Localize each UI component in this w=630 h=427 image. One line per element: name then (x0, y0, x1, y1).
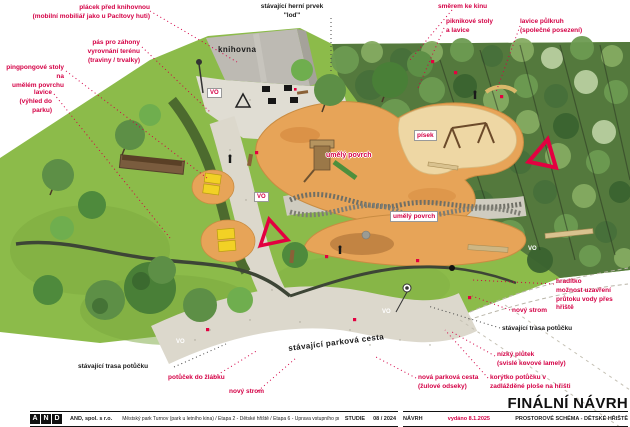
annotation-novy-strom-bottom: nový strom (229, 388, 264, 397)
date-label: 08 / 2024 (373, 416, 396, 422)
title-block-left: A N D AND, spol. s r.o. Městský park Tur… (30, 411, 398, 427)
annotation-potucek-zlabek: potůček do žlábku (168, 374, 225, 383)
annotation-smerem-ke-kinu: směrem ke kinu (438, 3, 487, 12)
annotation-piknikove-stoly: piknikové stoly a lavice (446, 18, 493, 36)
site-plan-sheet: plácek před knihovnou (mobilní mobiliář … (0, 0, 630, 427)
vo-marker-3: VO (176, 339, 185, 345)
title-block-right: NÁVRH vydáno 8.1.2025 PROSTOROVÉ SCHÉMA … (403, 411, 628, 427)
annotation-placek: plácek před knihovnou (mobilní mobiliář … (33, 4, 150, 22)
surface-label-1: umělý povrch (326, 152, 372, 159)
logo-letter-d: D (52, 414, 62, 424)
vo-marker-2: VO (254, 192, 269, 202)
annotation-pas-zahony: pás pro záhony vyrovnání terénu (traviny… (88, 39, 140, 65)
stage-label: NÁVRH (403, 416, 423, 422)
logo-letter-a: A (30, 414, 40, 424)
library-label: knihovna (218, 45, 256, 54)
project-title: Městský park Turnov (park u letního kina… (122, 416, 339, 422)
annotation-herni-prvek: stávající herní prvek "loď" (252, 3, 332, 21)
annotation-korytko: korýtko potůčku v zadlážděné ploše na hř… (490, 374, 571, 392)
annotation-lavice-pulkruh: lavice půlkruh (společné posezení) (520, 18, 582, 36)
annotation-trasa-potucku-left: stávající trasa potůčku (78, 363, 148, 372)
logo-letter-n: N (41, 414, 51, 424)
annotation-nizky-plutek: nízký plůtek (svislé kovové lamely) (497, 351, 566, 369)
vo-marker-1: VO (207, 88, 222, 98)
sand-label: písek (414, 130, 437, 141)
annotation-trasa-potucku-right: stávající trasa potůčku (502, 325, 572, 334)
issued-date: vydáno 8.1.2025 (448, 416, 490, 422)
firm-name: AND, spol. s r.o. (70, 416, 112, 422)
vo-marker-4: VO (382, 309, 391, 315)
surface-label-2: umělý povrch (390, 211, 438, 222)
annotation-pingpong: pingpongové stoly na umělém povrchu (0, 64, 64, 90)
annotation-lavice: lavice (výhled do parku) (0, 89, 52, 115)
vo-marker-5: VO (528, 246, 537, 252)
annotation-nova-cesta: nová parková cesta (žulové odseky) (418, 374, 478, 392)
annotation-novy-strom-right: nový strom (512, 307, 547, 316)
phase-label: STUDIE (345, 416, 365, 422)
sheet-name: PROSTOROVÉ SCHÉMA - DĚTSKÉ HŘIŠTĚ (515, 416, 628, 422)
annotation-hraditko: hradítko možnost uzavření průtoku vody p… (556, 278, 630, 313)
and-logo: A N D (30, 414, 62, 424)
final-design-title: FINÁLNÍ NÁVRH (403, 395, 628, 412)
